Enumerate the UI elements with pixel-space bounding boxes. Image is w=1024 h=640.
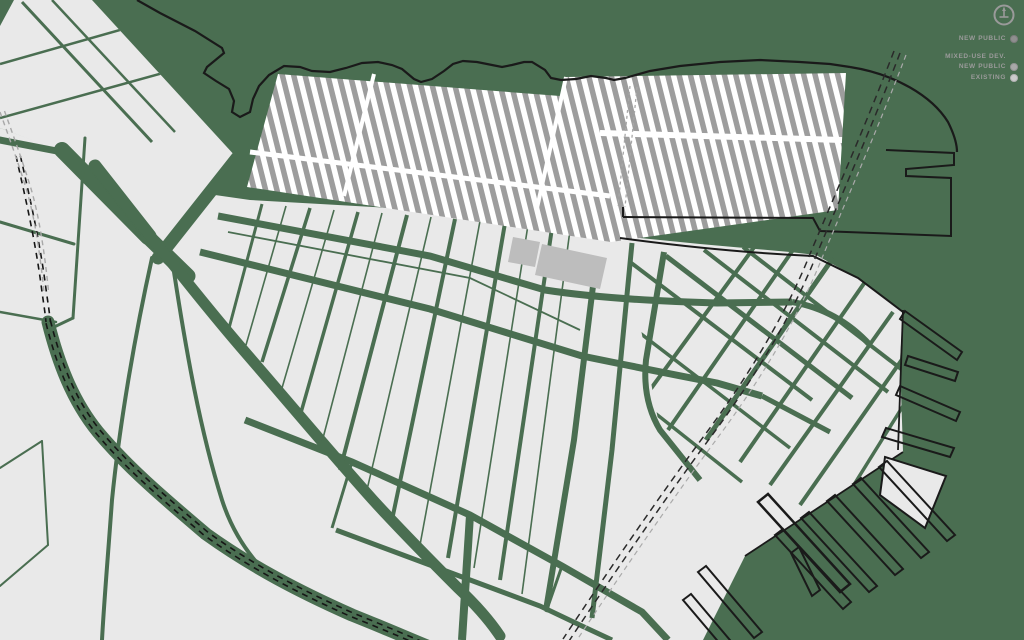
north-compass-icon	[993, 4, 1015, 26]
map-stage: NEW PUBLIC MIXED-USE DEV. NEW PUBLIC EXI…	[0, 0, 1024, 640]
legend-label: NEW PUBLIC MIXED-USE DEV.	[945, 35, 1006, 61]
legend-row-existing: EXISTING	[971, 74, 1018, 83]
map-legend: NEW PUBLIC MIXED-USE DEV. NEW PUBLIC EXI…	[945, 4, 1018, 83]
legend-dot-existing	[1010, 74, 1018, 82]
map-canvas	[0, 0, 1024, 640]
legend-row-new-public-mixed-use: NEW PUBLIC MIXED-USE DEV.	[945, 35, 1018, 61]
legend-label: NEW PUBLIC	[959, 63, 1006, 72]
legend-label: EXISTING	[971, 74, 1006, 83]
legend-dot-new-public-mixed-use	[1010, 35, 1018, 43]
legend-row-new-public: NEW PUBLIC	[959, 63, 1018, 72]
legend-dot-new-public	[1010, 63, 1018, 71]
